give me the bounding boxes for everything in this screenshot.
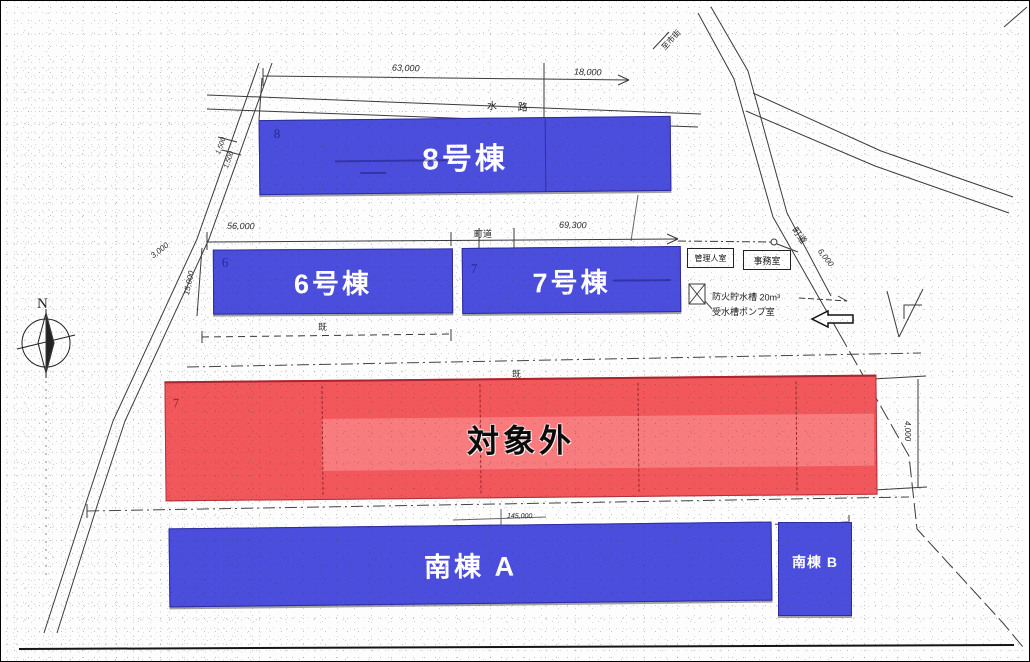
block-number-6: 6 bbox=[222, 255, 229, 271]
waterway-label: 水 路 bbox=[487, 97, 537, 114]
dim-63000: 63,000 bbox=[392, 63, 420, 74]
building-6-label: 6号棟 bbox=[294, 262, 372, 301]
block-number-7: 7 bbox=[471, 261, 478, 277]
existing-mark-a: 既 bbox=[318, 320, 327, 333]
dim-69300: 69,300 bbox=[559, 220, 587, 230]
dim-145000: 145,000 bbox=[507, 513, 532, 520]
left-arrow-icon bbox=[812, 311, 853, 327]
building-8-block: 8 8号棟 bbox=[259, 116, 672, 195]
building-6-block: 6 6号棟 bbox=[213, 248, 453, 314]
office-label: 事務室 bbox=[753, 254, 780, 267]
existing-mark-b: 既 bbox=[512, 367, 521, 380]
building-7-block: 7 7号棟 bbox=[462, 246, 682, 314]
south-building-b-block: 南棟 B bbox=[778, 522, 852, 616]
office-box: 事務室 bbox=[743, 250, 791, 270]
manager-room-box: 管理人室 bbox=[687, 248, 734, 268]
town-road-label: 町道 bbox=[474, 227, 492, 240]
faint-scribble bbox=[360, 172, 386, 174]
faint-scribble bbox=[613, 279, 671, 282]
south-building-a-block: 南棟 A bbox=[169, 522, 773, 608]
site-plan-canvas: 8 8号棟 6 6号棟 7 7号棟 7 対象外 南棟 A 南棟 B 管理人室 事… bbox=[0, 0, 1030, 662]
building-7-label: 7号棟 bbox=[532, 260, 610, 300]
dim-56000: 56,000 bbox=[227, 221, 255, 231]
tank-note: 防火貯水槽 20m³ bbox=[712, 289, 780, 303]
excluded-label: 対象外 bbox=[467, 415, 575, 462]
dim-18000: 18,000 bbox=[574, 67, 602, 78]
dim-4000: 4,000 bbox=[903, 421, 912, 441]
north-label: N bbox=[37, 296, 48, 313]
block-division-line bbox=[545, 118, 547, 191]
block-number-7-red: 7 bbox=[173, 395, 180, 411]
south-building-b-label: 南棟 B bbox=[792, 552, 838, 572]
manager-room-label: 管理人室 bbox=[695, 253, 727, 264]
excluded-light-band bbox=[322, 414, 874, 471]
building-8-label: 8号棟 bbox=[422, 133, 508, 178]
block-number-8: 8 bbox=[274, 126, 281, 142]
pump-note: 受水槽ポンプ室 bbox=[712, 305, 775, 318]
south-building-a-label: 南棟 A bbox=[424, 544, 517, 584]
excluded-block: 7 対象外 bbox=[164, 375, 877, 502]
